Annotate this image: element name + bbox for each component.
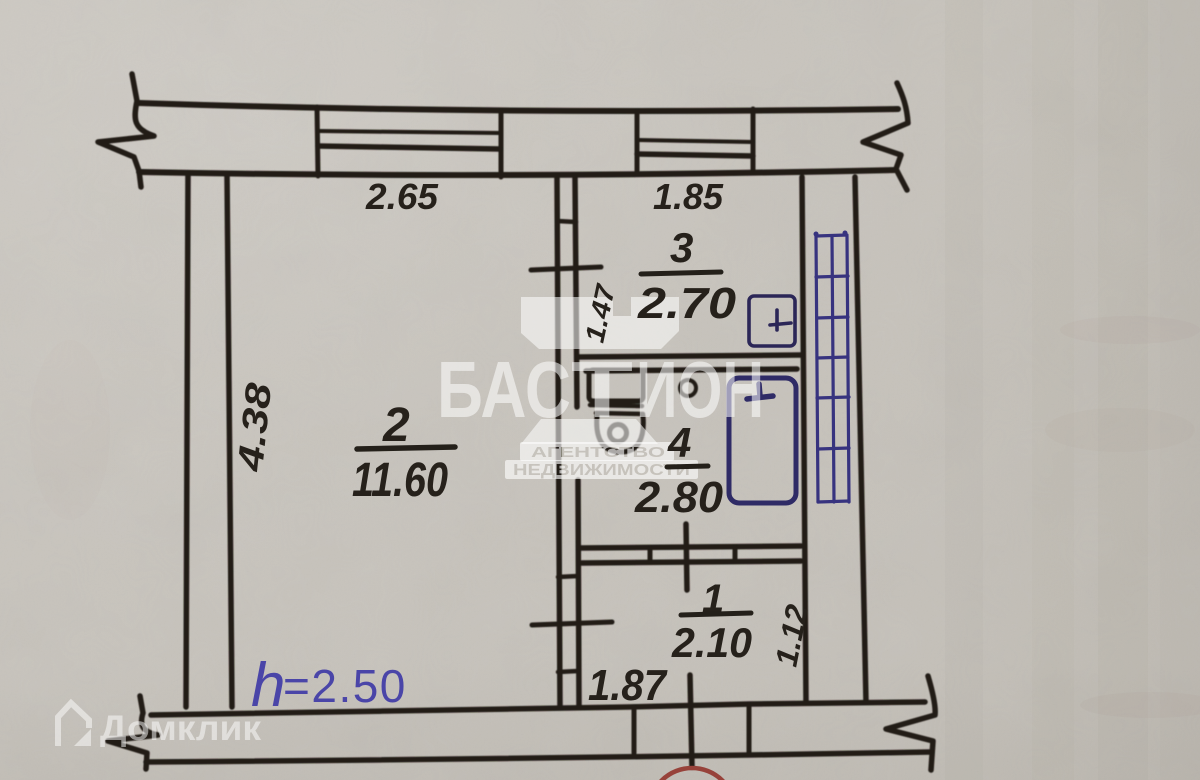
svg-text:2: 2 bbox=[382, 399, 410, 452]
svg-text:3: 3 bbox=[670, 224, 693, 271]
svg-text:ИОН: ИОН bbox=[636, 345, 764, 434]
svg-text:Домклик: Домклик bbox=[100, 709, 262, 748]
svg-text:1.85: 1.85 bbox=[653, 176, 724, 217]
svg-text:2.65: 2.65 bbox=[365, 176, 439, 217]
svg-text:h: h bbox=[251, 651, 285, 720]
svg-text:4: 4 bbox=[667, 419, 691, 466]
svg-text:=2.50: =2.50 bbox=[283, 660, 407, 712]
svg-text:2.80: 2.80 bbox=[634, 473, 724, 522]
svg-text:2.10: 2.10 bbox=[671, 619, 752, 666]
svg-text:2.70: 2.70 bbox=[637, 279, 737, 328]
svg-text:1.87: 1.87 bbox=[588, 661, 668, 710]
svg-text:11.60: 11.60 bbox=[352, 454, 448, 507]
